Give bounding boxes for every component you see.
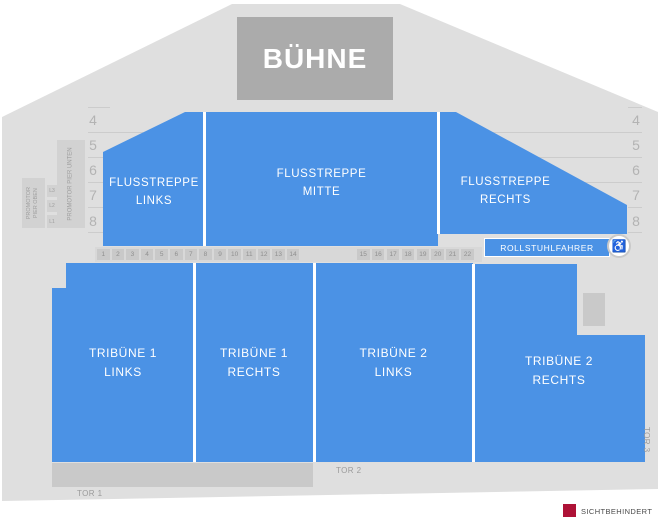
section-label: TRIBÜNE 2 xyxy=(473,352,645,371)
section-tribuene-1-rechts[interactable]: TRIBÜNE 1 RECHTS xyxy=(194,263,314,462)
walkway xyxy=(52,463,313,487)
section-label: RECHTS xyxy=(443,192,568,210)
seat-number: 8 xyxy=(199,249,212,260)
seat-number: 3 xyxy=(126,249,139,260)
section-divider xyxy=(193,263,196,462)
level-box-l2: L2 xyxy=(47,200,57,212)
row-number-right-8: 8 xyxy=(629,213,643,229)
row-number-left-5: 5 xyxy=(86,137,100,153)
section-label: RECHTS xyxy=(473,371,645,390)
seat-number: 17 xyxy=(387,249,400,260)
section-rollstuhlfahrer[interactable]: ROLLSTUHLFAHRER xyxy=(484,238,610,257)
seat-number: 2 xyxy=(112,249,125,260)
row-number-right-7: 7 xyxy=(629,187,643,203)
row-line xyxy=(88,182,103,183)
seat-number: 16 xyxy=(372,249,385,260)
seat-number: 21 xyxy=(446,249,459,260)
promotor-pier-unten-label: PROMOTOR PIER UNTEN xyxy=(68,147,74,220)
seat-number: 15 xyxy=(357,249,370,260)
row-line xyxy=(628,107,642,108)
section-label: RECHTS xyxy=(220,363,288,382)
seat-number: 6 xyxy=(170,249,183,260)
seat-number: 10 xyxy=(228,249,241,260)
section-label: TRIBÜNE 2 xyxy=(359,344,427,363)
stage-label: BÜHNE xyxy=(263,43,368,75)
section-label: LINKS xyxy=(89,363,157,382)
section-divider xyxy=(203,112,206,246)
seat-number: 13 xyxy=(272,249,285,260)
wheelchair-badge: ♿ xyxy=(607,234,631,258)
seat-number: 12 xyxy=(258,249,271,260)
section-label: TRIBÜNE 1 xyxy=(220,344,288,363)
seat-number: 22 xyxy=(461,249,474,260)
section-divider xyxy=(437,112,440,234)
row-number-left-7: 7 xyxy=(86,187,100,203)
level-l3-label: L3 xyxy=(49,188,55,194)
level-box-l3: L3 xyxy=(47,185,57,197)
rollstuhlfahrer-label: ROLLSTUHLFAHRER xyxy=(500,243,594,253)
seat-number: 18 xyxy=(402,249,415,260)
section-divider xyxy=(313,263,316,462)
row-line xyxy=(88,207,103,208)
sichtbehindert-color-swatch xyxy=(563,504,576,517)
seat-number: 7 xyxy=(185,249,198,260)
promotor-pier-oben: PROMOTOR PIER OBEN xyxy=(22,178,45,228)
level-l1-label: L1 xyxy=(49,219,55,225)
row-number-right-6: 6 xyxy=(629,162,643,178)
gate-tor-3: TOR 3 xyxy=(642,427,651,452)
seat-number: 5 xyxy=(155,249,168,260)
seat-number: 9 xyxy=(214,249,227,260)
row-line xyxy=(88,107,110,108)
row-line xyxy=(537,157,642,158)
stage: BÜHNE xyxy=(237,17,393,100)
seat-number: 14 xyxy=(287,249,300,260)
row-number-right-4: 4 xyxy=(629,112,643,128)
section-divider xyxy=(472,264,475,462)
row-line xyxy=(88,157,103,158)
gate-tor-1: TOR 1 xyxy=(77,489,102,498)
seat-number: 19 xyxy=(417,249,430,260)
gate-tor-2: TOR 2 xyxy=(336,466,361,475)
seat-number: 11 xyxy=(243,249,256,260)
level-box-l1: L1 xyxy=(47,215,57,228)
row-number-right-5: 5 xyxy=(629,137,643,153)
row-number-left-8: 8 xyxy=(86,213,100,229)
row-number-left-4: 4 xyxy=(86,112,100,128)
promotor-pier-unten: PROMOTOR PIER UNTEN xyxy=(57,140,85,228)
seat-numbers-group2: 15 16 17 18 19 20 21 22 xyxy=(357,249,474,260)
seat-number: 20 xyxy=(431,249,444,260)
section-tribuene-2-links[interactable]: TRIBÜNE 2 LINKS xyxy=(314,263,473,462)
section-label: LINKS xyxy=(359,363,427,382)
row-line xyxy=(88,232,103,233)
row-line xyxy=(628,232,642,233)
row-line xyxy=(584,182,642,183)
platform-block xyxy=(583,293,605,326)
section-label: LINKS xyxy=(109,193,199,211)
row-line xyxy=(88,132,143,133)
section-flusstreppe-mitte[interactable]: FLUSSTREPPE MITTE xyxy=(205,112,438,246)
section-label: MITTE xyxy=(277,184,367,202)
level-l2-label: L2 xyxy=(49,203,55,209)
row-line xyxy=(490,132,642,133)
row-number-left-6: 6 xyxy=(86,162,100,178)
promotor-pier-oben-label: PROMOTOR PIER OBEN xyxy=(26,187,40,219)
wheelchair-icon: ♿ xyxy=(612,240,627,252)
section-label: FLUSSTREPPE xyxy=(109,175,199,193)
seat-number: 4 xyxy=(141,249,154,260)
section-label: FLUSSTREPPE xyxy=(443,174,568,192)
section-tribuene-1-links[interactable]: TRIBÜNE 1 LINKS xyxy=(52,263,194,462)
section-label: TRIBÜNE 1 xyxy=(89,344,157,363)
sichtbehindert-legend-label: SICHTBEHINDERT xyxy=(581,507,652,516)
section-label: FLUSSTREPPE xyxy=(277,166,367,184)
venue-seating-map: BÜHNE PROMOTOR PIER OBEN PROMOTOR PIER U… xyxy=(0,0,670,523)
row-line xyxy=(628,207,642,208)
seat-number: 1 xyxy=(97,249,110,260)
seat-numbers-group1: 1 2 3 4 5 6 7 8 9 10 11 12 13 14 xyxy=(97,249,299,260)
